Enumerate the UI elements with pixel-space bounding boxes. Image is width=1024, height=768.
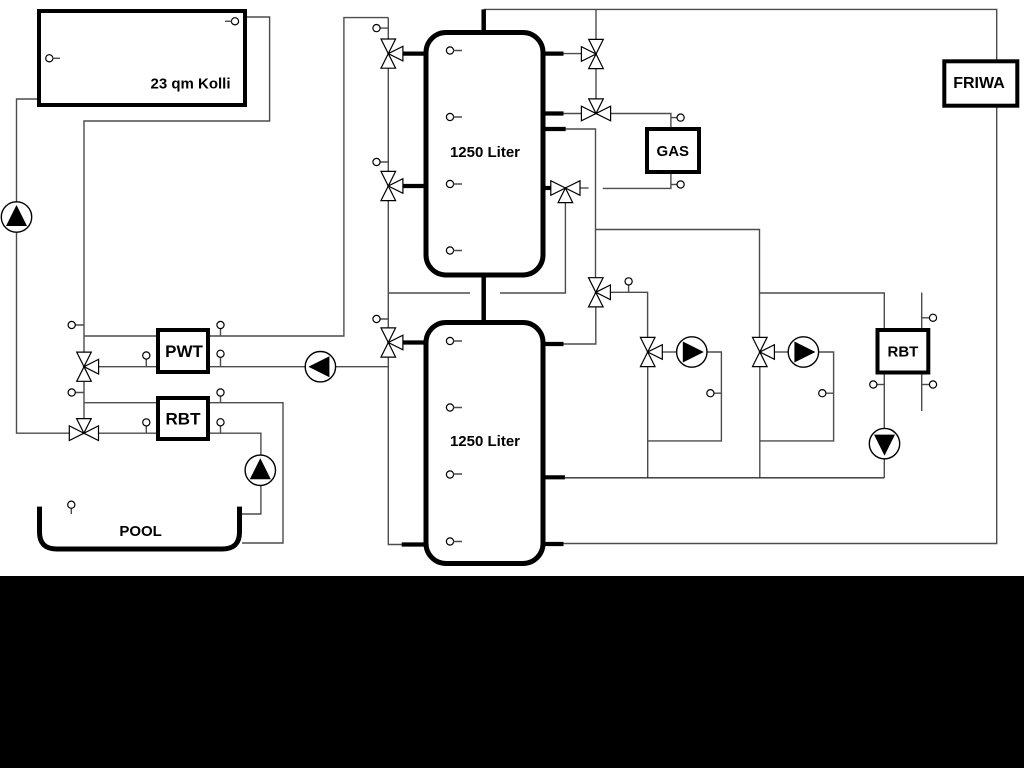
svg-text:FRIWA: FRIWA <box>953 75 1005 92</box>
svg-text:PWT: PWT <box>165 342 203 361</box>
svg-text:RBT: RBT <box>887 344 918 361</box>
svg-text:GAS: GAS <box>657 143 690 160</box>
svg-text:POOL: POOL <box>119 523 162 540</box>
svg-text:RBT: RBT <box>166 410 202 429</box>
svg-text:23 qm Kolli: 23 qm Kolli <box>150 75 230 92</box>
svg-text:1250 Liter: 1250 Liter <box>450 433 520 450</box>
svg-text:1250 Liter: 1250 Liter <box>450 144 520 161</box>
